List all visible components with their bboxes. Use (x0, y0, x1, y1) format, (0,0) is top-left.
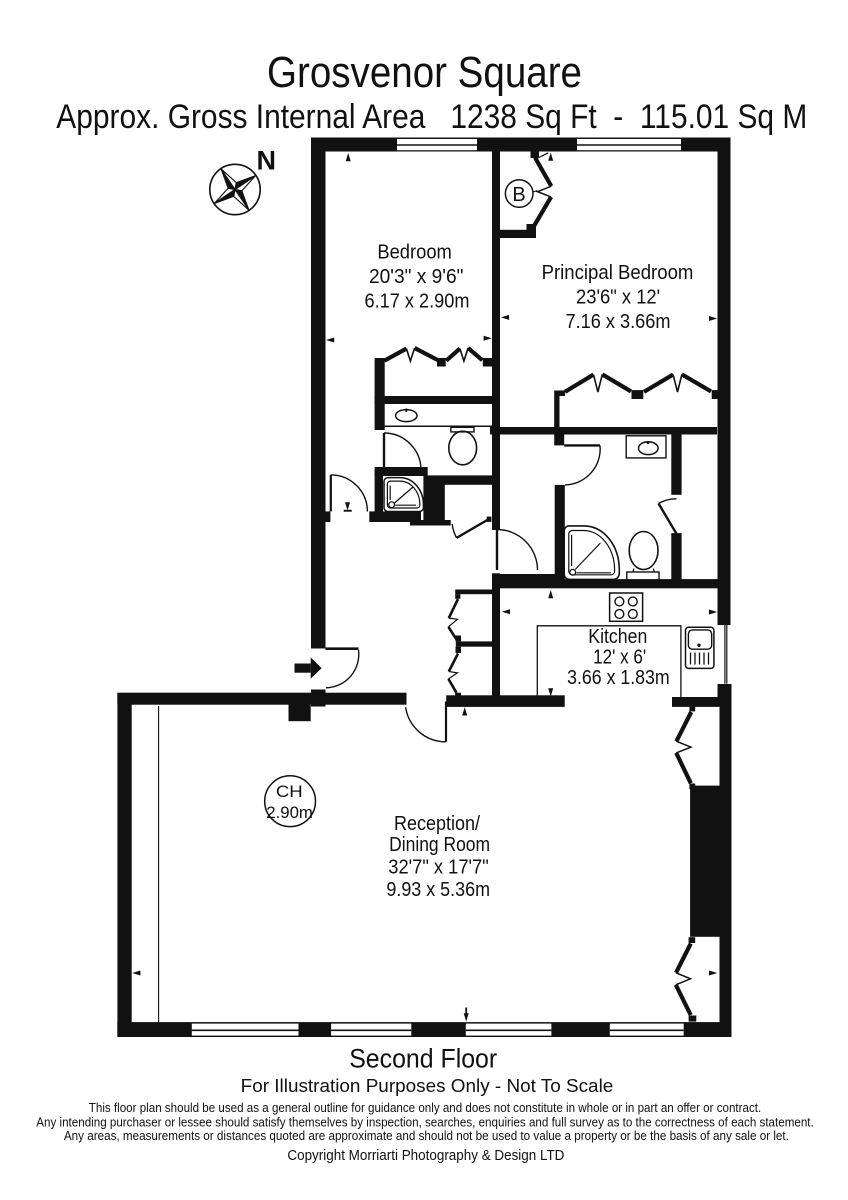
svg-text:B: B (512, 184, 525, 206)
svg-text:20'3" x 9'6": 20'3" x 9'6" (369, 265, 463, 288)
svg-text:Dining Room: Dining Room (389, 833, 490, 856)
svg-text:23'6" x 12': 23'6" x 12' (576, 286, 660, 309)
svg-text:Approx. Gross Internal Area: Approx. Gross Internal Area 1238 Sq Ft -… (56, 98, 807, 136)
svg-text:CH: CH (276, 783, 303, 801)
svg-text:7.16 x 3.66m: 7.16 x 3.66m (566, 310, 671, 333)
svg-text:9.93 x 5.36m: 9.93 x 5.36m (386, 878, 490, 901)
svg-text:Any intending purchaser or les: Any intending purchaser or lessee should… (36, 1116, 814, 1130)
svg-text:Principal Bedroom: Principal Bedroom (542, 261, 694, 284)
svg-text:N: N (257, 146, 277, 176)
svg-text:For Illustration Purposes Only: For Illustration Purposes Only - Not To … (241, 1075, 614, 1096)
svg-text:32'7" x 17'7": 32'7" x 17'7" (388, 856, 488, 879)
svg-text:3.66 x 1.83m: 3.66 x 1.83m (567, 666, 670, 689)
svg-text:6.17 x 2.90m: 6.17 x 2.90m (365, 289, 470, 312)
svg-text:Bedroom: Bedroom (377, 241, 452, 264)
svg-text:Grosvenor Square: Grosvenor Square (267, 48, 582, 97)
svg-text:Copyright Morriarti Photograph: Copyright Morriarti Photography & Design… (287, 1148, 564, 1164)
svg-text:Second Floor: Second Floor (349, 1043, 497, 1073)
svg-text:Any areas, measurements or dis: Any areas, measurements or distances quo… (64, 1129, 789, 1143)
svg-text:2.90m: 2.90m (266, 804, 313, 822)
svg-text:Reception/: Reception/ (394, 812, 480, 835)
svg-text:This floor plan should be used: This floor plan should be used as a gene… (89, 1101, 761, 1115)
